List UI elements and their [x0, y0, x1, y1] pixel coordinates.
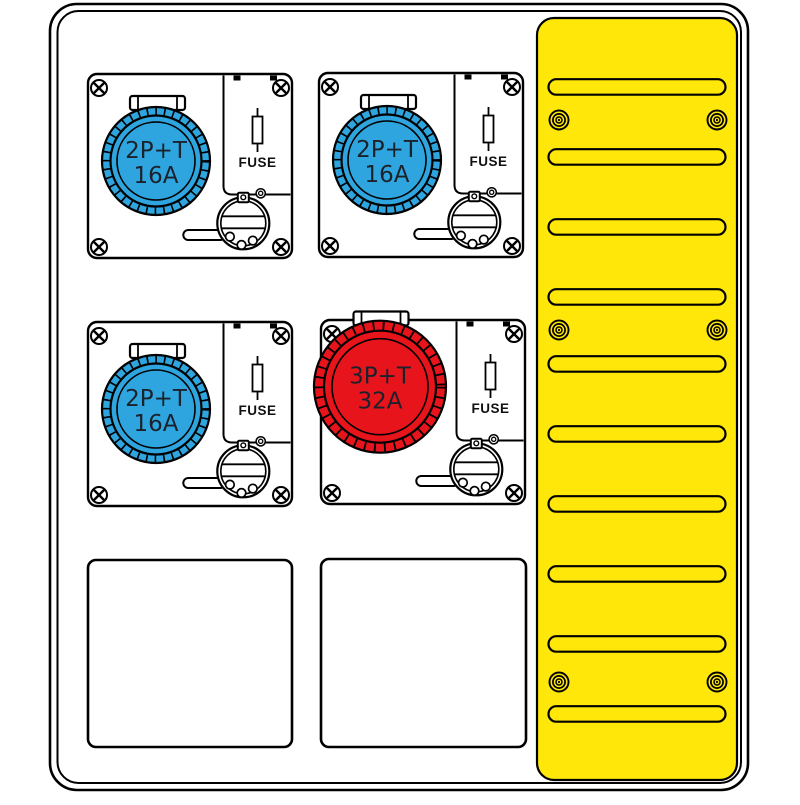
socket-module-top-left: 2P+T 16A FUSE	[88, 74, 292, 258]
side-flange-panel	[537, 18, 737, 780]
socket-rating-label: 16A	[133, 163, 178, 189]
side-panel-face	[537, 18, 737, 780]
distribution-box-diagram: 2P+T 16A FUSE 2P+T 16A FUSE 2P+T 16A FUS…	[0, 0, 800, 800]
socket-module-bottom-left: 2P+T 16A FUSE	[88, 322, 292, 506]
socket-type-label: 2P+T	[125, 138, 188, 164]
socket-rating-label: 16A	[364, 162, 409, 188]
fuse-label: FUSE	[469, 154, 507, 169]
fuse-label: FUSE	[238, 155, 276, 170]
socket-type-label: 2P+T	[125, 386, 188, 412]
panel-screw	[550, 111, 569, 130]
panel-screw	[708, 321, 727, 340]
socket-type-label: 2P+T	[356, 137, 419, 163]
socket-module-top-right: 2P+T 16A FUSE	[319, 73, 523, 257]
panel-screw	[550, 321, 569, 340]
socket-rating-label: 16A	[133, 411, 178, 437]
socket-module-bottom-right: 3P+T 32A FUSE	[314, 312, 525, 505]
panel-screw	[708, 673, 727, 692]
blank-window-left	[88, 560, 292, 747]
fuse-label: FUSE	[238, 403, 276, 418]
panel-screw	[550, 673, 569, 692]
enclosure-drawing: 2P+T 16A FUSE 2P+T 16A FUSE 2P+T 16A FUS…	[0, 0, 800, 800]
socket-type-label: 3P+T	[349, 364, 412, 390]
socket-rating-label: 32A	[357, 389, 402, 415]
fuse-label: FUSE	[471, 401, 509, 416]
panel-screw	[708, 111, 727, 130]
blank-window-right	[321, 559, 526, 747]
